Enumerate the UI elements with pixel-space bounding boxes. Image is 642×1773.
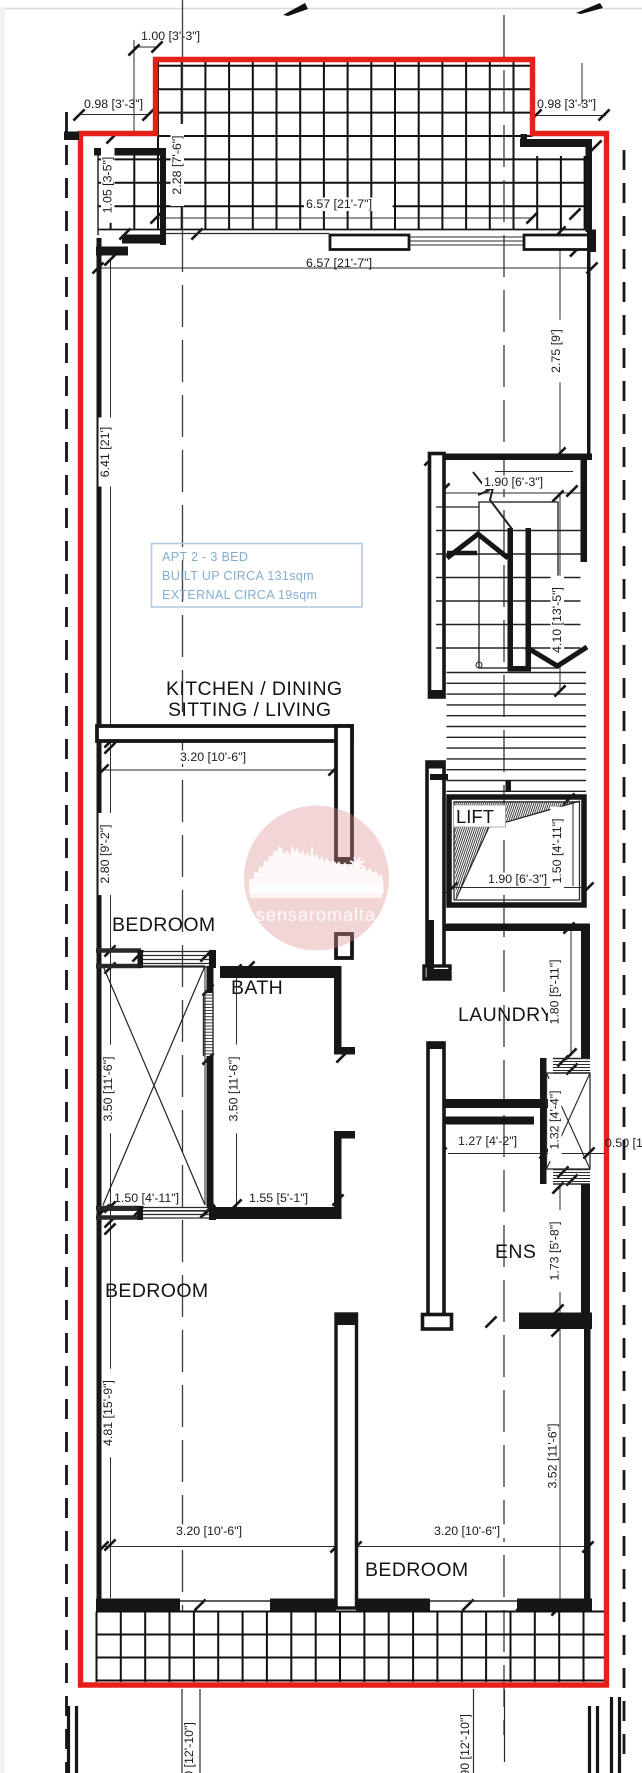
svg-text:3.50 [11'-6"]: 3.50 [11'-6"] — [227, 1056, 241, 1121]
svg-text:1.32 [4'-4"]: 1.32 [4'-4"] — [548, 1090, 562, 1149]
svg-text:BEDROOM: BEDROOM — [365, 1559, 469, 1581]
svg-text:1.73 [5'-8"]: 1.73 [5'-8"] — [548, 1221, 562, 1280]
svg-text:3.50 [11'-6"]: 3.50 [11'-6"] — [101, 1056, 115, 1121]
svg-text:BEDROOM: BEDROOM — [112, 914, 216, 936]
svg-text:3.52 [11'-6"]: 3.52 [11'-6"] — [546, 1423, 560, 1488]
svg-text:EXTERNAL CIRCA 19sqm: EXTERNAL CIRCA 19sqm — [162, 588, 317, 602]
svg-text:BUILT UP CIRCA 131sqm: BUILT UP CIRCA 131sqm — [162, 569, 314, 583]
svg-text:1.00 [3'-3"]: 1.00 [3'-3"] — [141, 29, 200, 43]
svg-text:2.75 [9']: 2.75 [9'] — [549, 329, 563, 373]
svg-text:0.98 [3'-3"]: 0.98 [3'-3"] — [537, 97, 596, 111]
svg-text:2.28 [7'-6"]: 2.28 [7'-6"] — [170, 135, 184, 194]
svg-text:APT 2 - 3 BED: APT 2 - 3 BED — [162, 550, 248, 564]
svg-text:1.90 [6'-3"]: 1.90 [6'-3"] — [488, 872, 547, 886]
svg-text:6.41 [21']: 6.41 [21'] — [98, 427, 112, 478]
svg-text:4.10 [13'-5"]: 4.10 [13'-5"] — [550, 587, 564, 653]
svg-text:6.57 [21'-7"]: 6.57 [21'-7"] — [306, 197, 372, 211]
svg-text:1.27 [4'-2"]: 1.27 [4'-2"] — [458, 1134, 517, 1148]
svg-text:0.98 [3'-3"]: 0.98 [3'-3"] — [84, 97, 143, 111]
svg-text:3.90 [12'-10"]: 3.90 [12'-10"] — [182, 1722, 196, 1773]
svg-text:LIFT: LIFT — [456, 806, 494, 827]
svg-text:1.50 [4'-11"]: 1.50 [4'-11"] — [114, 1191, 179, 1205]
svg-text:0.50 [1'-8"]: 0.50 [1'-8"] — [605, 1136, 642, 1150]
svg-text:4.81 [15'-9"]: 4.81 [15'-9"] — [101, 1380, 115, 1446]
svg-text:3.90 [12'-10"]: 3.90 [12'-10"] — [458, 1714, 472, 1773]
svg-text:BEDROOM: BEDROOM — [105, 1280, 209, 1302]
svg-text:6.57 [21'-7"]: 6.57 [21'-7"] — [306, 256, 372, 270]
svg-text:SITTING / LIVING: SITTING / LIVING — [168, 699, 332, 721]
svg-text:1.05 [3-5"]: 1.05 [3-5"] — [101, 157, 115, 214]
svg-text:3.20 [10'-6"]: 3.20 [10'-6"] — [176, 1524, 242, 1538]
svg-text:sensaromalta: sensaromalta — [256, 905, 376, 925]
svg-text:1.80 [5'-11"]: 1.80 [5'-11"] — [548, 959, 562, 1024]
svg-text:1.55 [5'-1"]: 1.55 [5'-1"] — [249, 1191, 308, 1205]
svg-text:KITCHEN / DINING: KITCHEN / DINING — [166, 678, 343, 700]
svg-text:BATH: BATH — [231, 977, 283, 999]
svg-text:1.90 [6'-3"]: 1.90 [6'-3"] — [484, 475, 543, 489]
svg-text:2.80 [9'-2"]: 2.80 [9'-2"] — [98, 824, 112, 883]
svg-text:3.20 [10'-6"]: 3.20 [10'-6"] — [180, 750, 246, 764]
svg-text:1.50 [4'-11"]: 1.50 [4'-11"] — [550, 818, 564, 883]
svg-text:ENS: ENS — [495, 1241, 536, 1263]
svg-text:LAUNDRY: LAUNDRY — [458, 1004, 554, 1026]
svg-text:3.20 [10'-6"]: 3.20 [10'-6"] — [434, 1524, 500, 1538]
